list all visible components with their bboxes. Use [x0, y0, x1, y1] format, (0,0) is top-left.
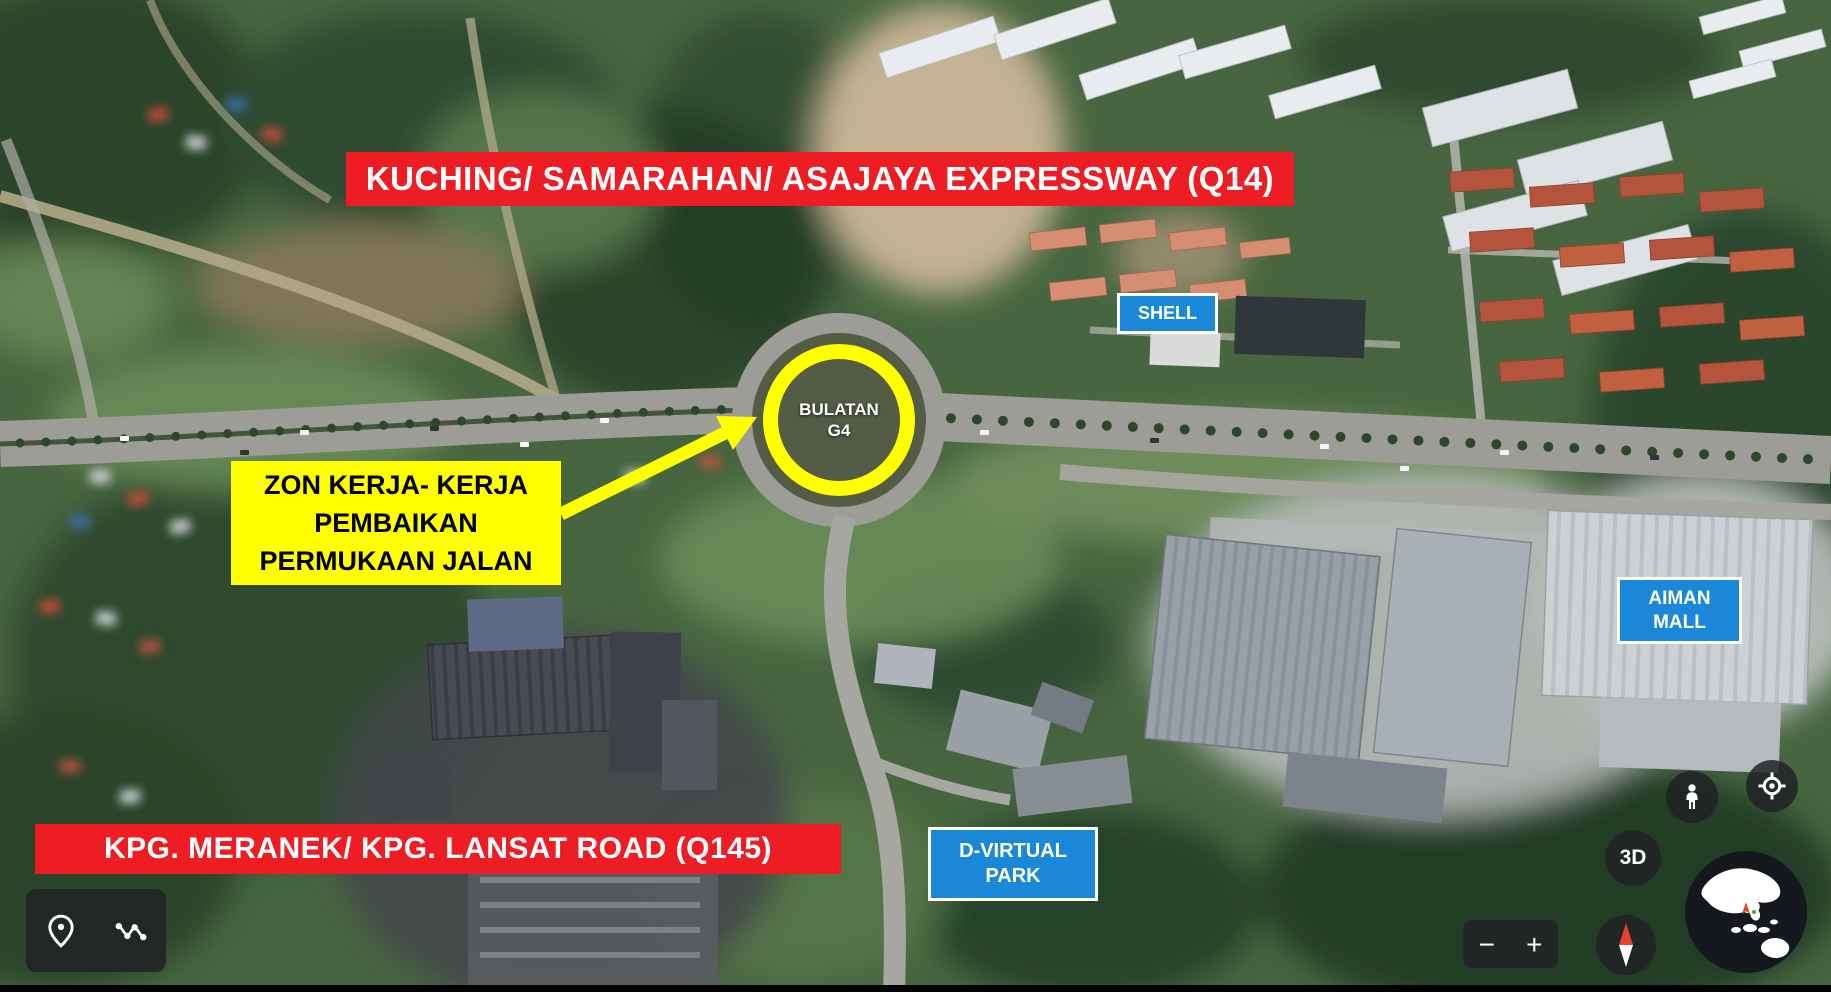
map-viewport: KUCHING/ SAMARAHAN/ ASAJAYA EXPRESSWAY (… — [0, 0, 1831, 992]
top-road-banner: KUCHING/ SAMARAHAN/ ASAJAYA EXPRESSWAY (… — [346, 152, 1294, 206]
my-location-icon — [1757, 771, 1787, 801]
zoom-out-button[interactable]: − — [1465, 922, 1509, 966]
location-pin-icon — [46, 914, 76, 948]
place-label-d-virtual-park: D-VIRTUAL PARK — [928, 827, 1098, 901]
place-label-aiman-mall: AIMAN MALL — [1617, 577, 1742, 644]
roundabout-label: BULATAN G4 — [799, 399, 879, 441]
view-3d-button[interactable]: 3D — [1605, 830, 1661, 886]
earth-globe-icon — [1684, 850, 1808, 974]
pegman-icon — [1679, 783, 1705, 811]
place-label-shell: SHELL — [1117, 293, 1218, 334]
view-3d-label: 3D — [1620, 846, 1647, 870]
roundabout-highlight-circle: BULATAN G4 — [763, 344, 915, 496]
my-location-button[interactable] — [1746, 760, 1798, 812]
zoom-control: − + — [1463, 920, 1558, 968]
map-tools-panel — [26, 889, 166, 972]
add-placemark-button[interactable] — [35, 905, 87, 957]
earth-globe-button[interactable] — [1684, 850, 1808, 974]
street-view-pegman-button[interactable] — [1666, 771, 1718, 823]
work-zone-callout: ZON KERJA- KERJA PEMBAIKAN PERMUKAAN JAL… — [231, 461, 561, 585]
bottom-road-banner: KPG. MERANEK/ KPG. LANSAT ROAD (Q145) — [35, 824, 841, 874]
compass-north-icon — [1596, 915, 1656, 975]
measure-path-button[interactable] — [105, 905, 157, 957]
measure-path-icon — [115, 920, 147, 942]
zoom-in-button[interactable]: + — [1512, 922, 1556, 966]
compass-button[interactable] — [1596, 915, 1656, 975]
bottom-letterbox — [0, 985, 1831, 992]
